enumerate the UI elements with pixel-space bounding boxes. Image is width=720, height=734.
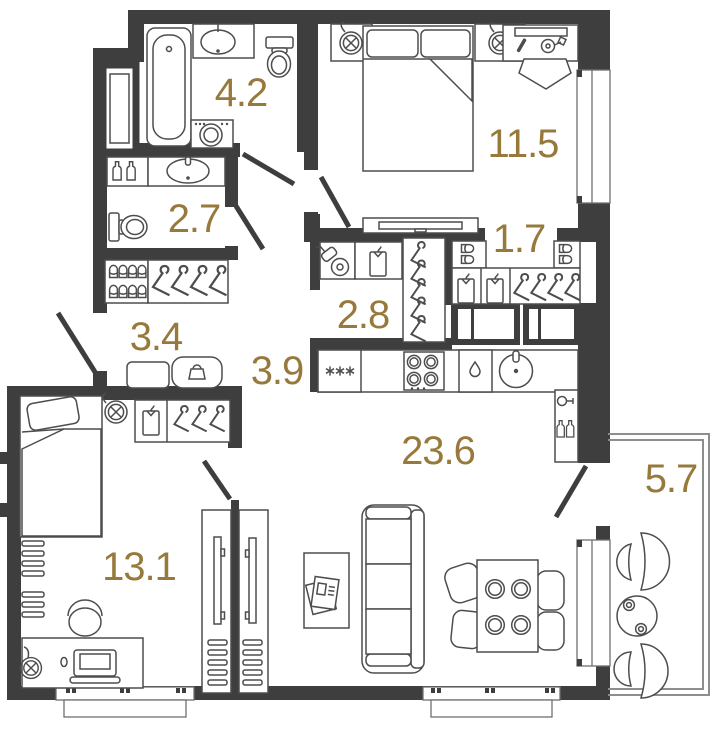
detergent-bottles-icon: [107, 157, 148, 186]
toilet-icon: [266, 37, 293, 77]
desk-chair-icon: [519, 59, 571, 89]
door-bathroom: [243, 154, 294, 184]
chair-icon: [68, 600, 102, 636]
room-label-corridor: 3.9: [251, 349, 304, 393]
room-label-bathroom: 4.2: [215, 71, 268, 115]
wall-segment: [93, 248, 238, 260]
desk-icon: [503, 25, 578, 61]
door-entry: [58, 313, 95, 372]
dining-chair-icon: [537, 612, 564, 650]
wardrobe-icon: [452, 268, 580, 304]
door-bedroom: [321, 177, 349, 227]
wall-lamp-icon: [340, 32, 362, 54]
wall-segment: [310, 214, 320, 290]
built-in-cabinet: [523, 303, 580, 345]
wall-segment: [596, 664, 610, 700]
vanity-sink-icon: [148, 157, 225, 186]
wall-segment: [225, 152, 238, 207]
shoe-box-icon: [452, 241, 486, 268]
single-bed-icon: [20, 396, 102, 537]
washing-machine-icon: [191, 120, 233, 148]
tv-panel-icon: [202, 510, 231, 693]
dishwasher-icon: [459, 350, 492, 392]
room-label-bedroom: 11.5: [488, 122, 559, 166]
door-wc: [236, 206, 263, 249]
handbag-icon: [172, 357, 222, 388]
armchair-icon: [617, 533, 670, 590]
bench-icon: [127, 362, 169, 388]
shoe-cabinet-icon: [105, 260, 148, 303]
room-label-wc: 2.7: [168, 197, 221, 241]
wall-segment: [578, 303, 610, 463]
wall-stub: [0, 452, 9, 464]
window-living-south: [423, 687, 560, 717]
vanity-sink-icon: [193, 24, 254, 58]
room-label-living: 23.6: [401, 429, 475, 473]
built-in-cabinet: [451, 303, 520, 345]
room-label-storage: 2.8: [337, 293, 390, 337]
wardrobe-icon: [135, 400, 230, 442]
wall-segment: [128, 10, 610, 24]
kitchen-counter: [318, 350, 578, 392]
door-balcony: [556, 466, 586, 517]
coffee-table-icon: [304, 553, 349, 628]
wall-segment: [578, 10, 610, 72]
wall-segment: [297, 24, 318, 152]
double-bed-icon: [363, 26, 473, 171]
door-bedroom2: [204, 461, 230, 499]
desk-lamp-icon: [21, 658, 42, 679]
window-bedroom2-south: [56, 687, 194, 717]
hanger-rack-icon: [403, 238, 445, 342]
round-table-icon: [617, 596, 657, 636]
window-bedroom-east: [577, 70, 610, 203]
wall-segment: [578, 200, 610, 232]
desk-icon: [21, 638, 143, 688]
tv-panel-icon: [239, 510, 268, 693]
duct-shaft: [103, 65, 136, 152]
room-living: [239, 505, 564, 693]
dining-chair-icon: [537, 571, 564, 610]
wall-shelves-icon: [22, 541, 44, 617]
shoe-box-icon: [554, 241, 580, 268]
window-living-east: [577, 540, 610, 666]
hob-icon: [404, 352, 444, 390]
room-bedroom2: [20, 393, 231, 693]
dining-table-icon: [477, 560, 538, 652]
fridge-icon: [318, 350, 361, 392]
tv-console-icon: [363, 218, 478, 233]
wall-lamp-icon: [105, 401, 127, 423]
toilet-icon: [109, 213, 147, 241]
wall-segment: [7, 386, 21, 700]
wall-segment: [557, 228, 610, 242]
room-label-balcony: 5.7: [645, 457, 698, 501]
room-label-entry-hall: 3.4: [130, 315, 183, 359]
room-label-wardrobe-hall: 1.7: [493, 217, 546, 261]
floor-plan: 4.2 2.7 11.5 1.7 2.8 3.4 3.9 23.6 13.1 5…: [0, 0, 720, 734]
wall-stub: [0, 503, 9, 517]
bar-shelf-icon: [555, 390, 578, 462]
floor-plan-canvas: 4.2 2.7 11.5 1.7 2.8 3.4 3.9 23.6 13.1 5…: [0, 0, 720, 734]
room-label-bedroom2: 13.1: [102, 545, 176, 589]
room-balcony: [614, 533, 670, 698]
bathtub-icon: [147, 28, 191, 146]
sofa-icon: [362, 505, 424, 673]
coat-hangers-icon: [148, 260, 228, 303]
wall-segment: [231, 500, 239, 692]
wall-segment: [304, 152, 318, 170]
